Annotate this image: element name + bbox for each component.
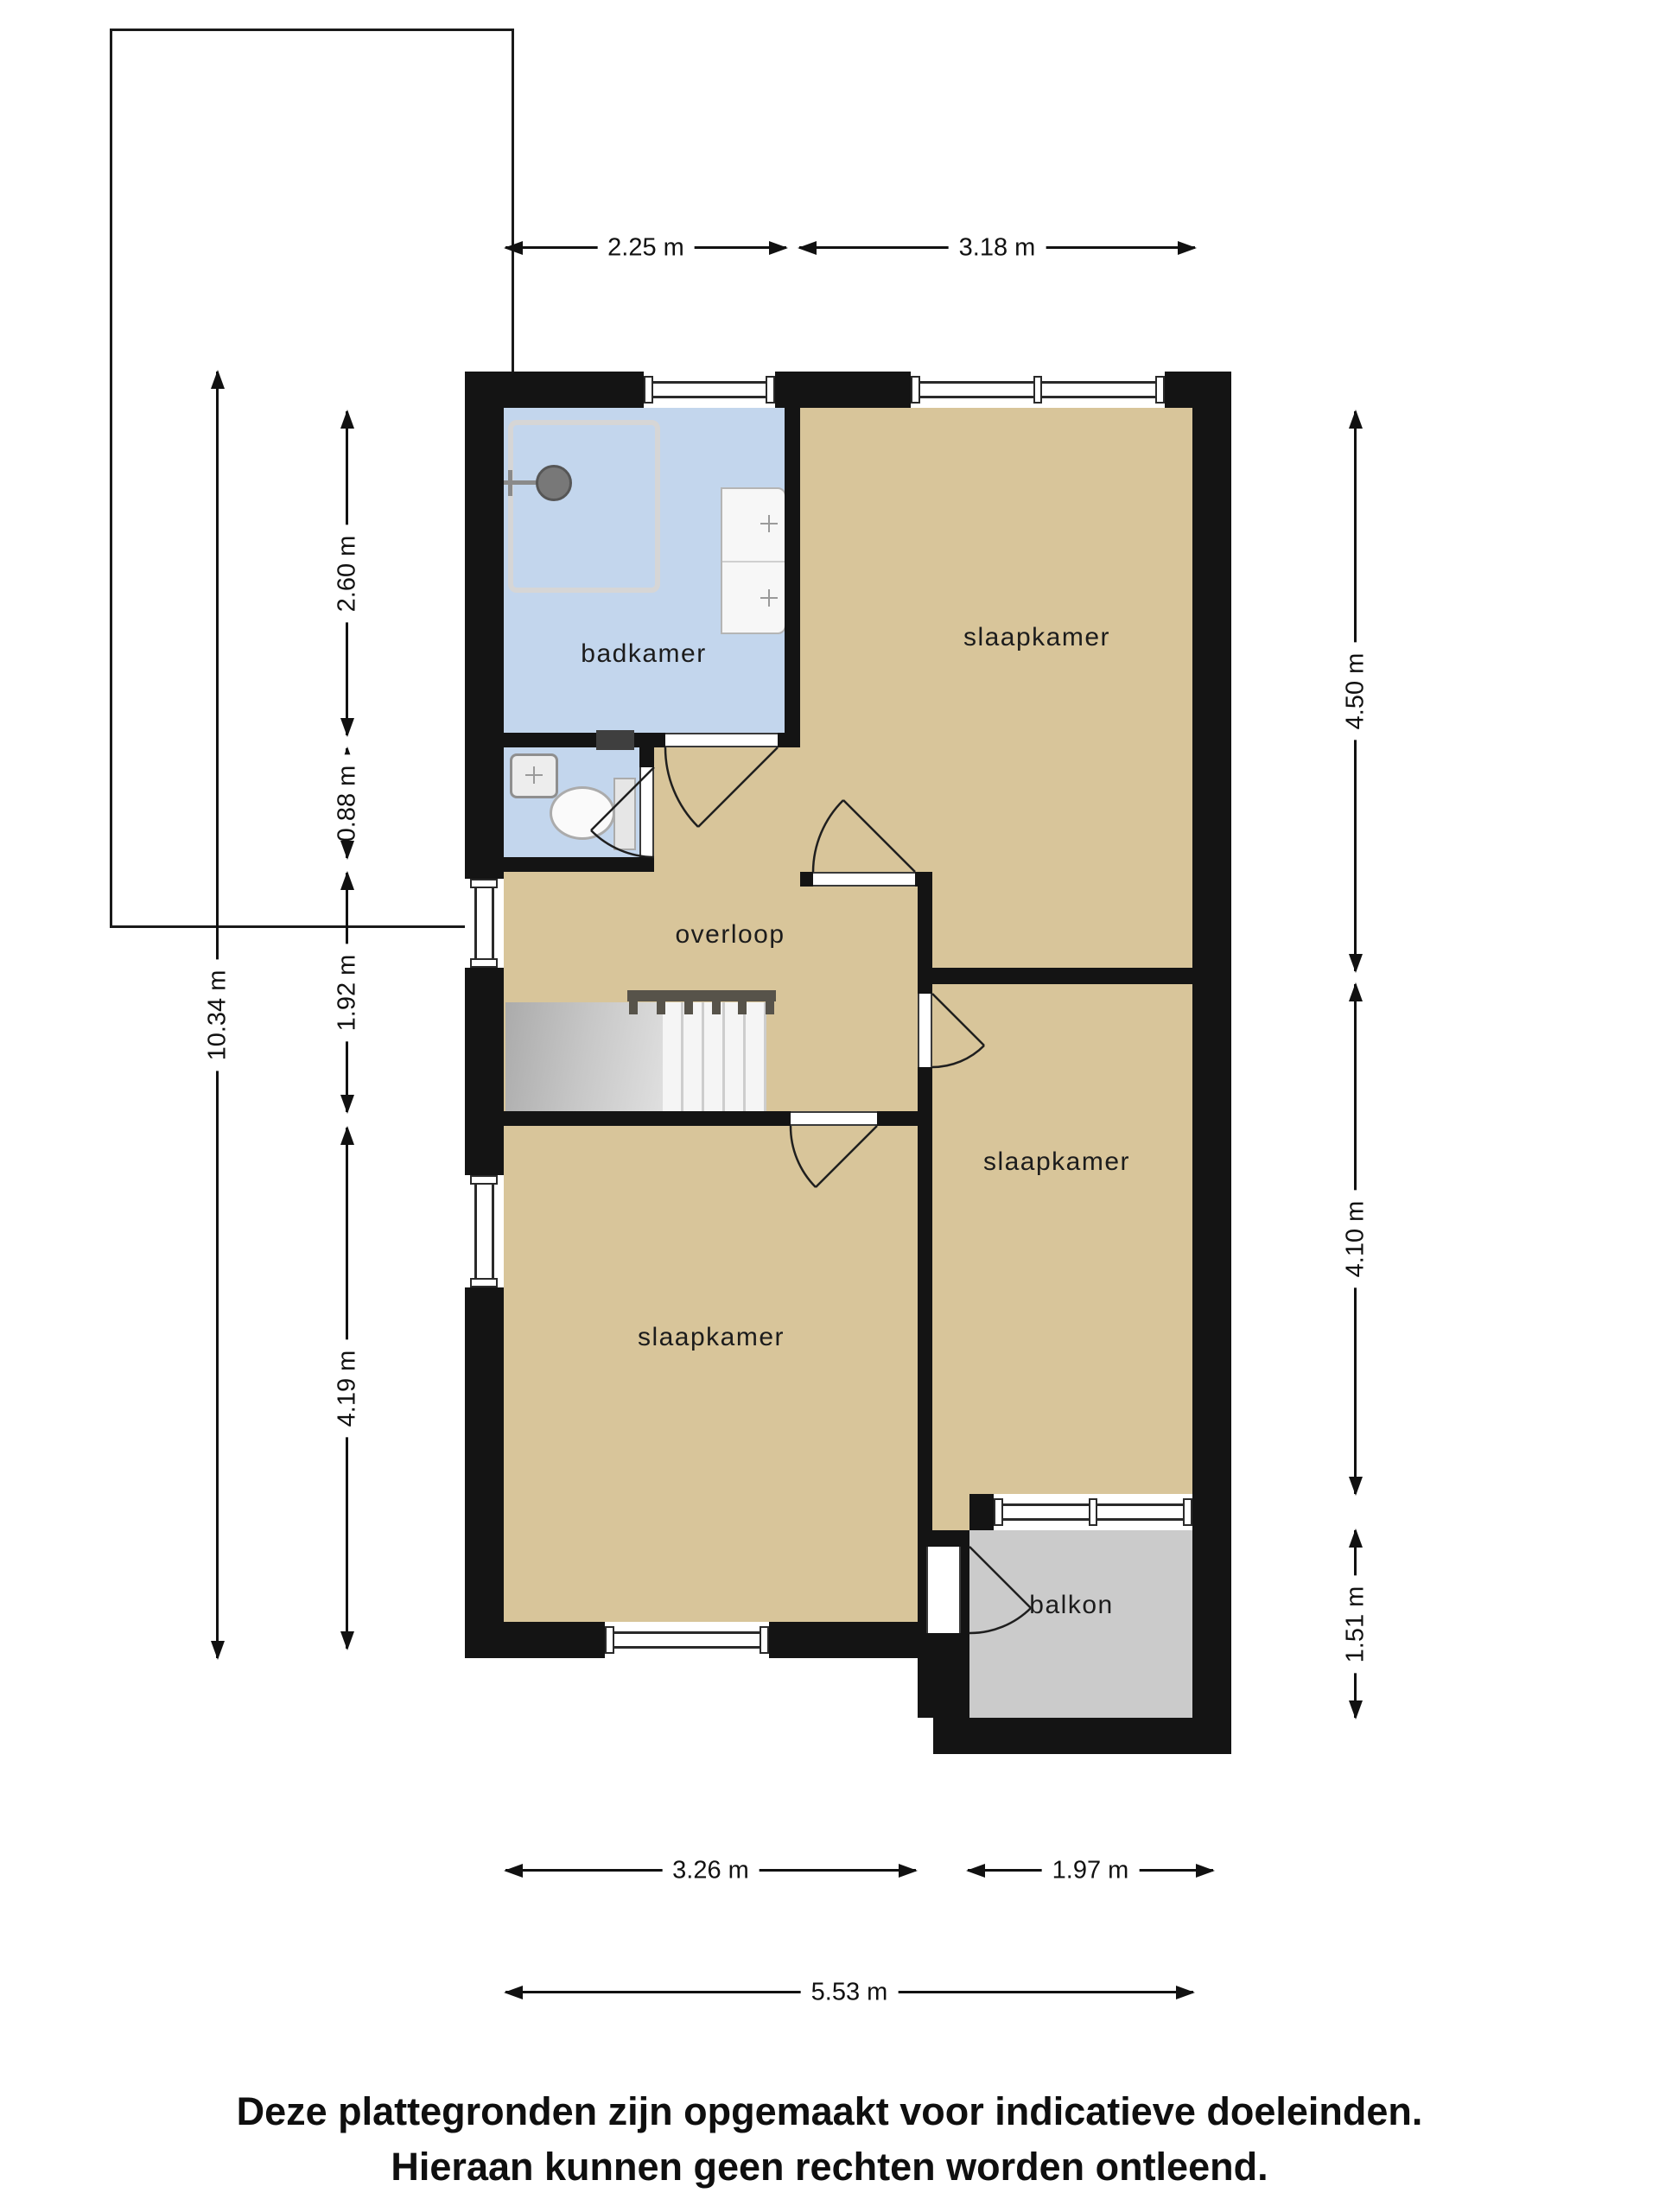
footprint-outline-right bbox=[512, 29, 514, 373]
window-glazing bbox=[610, 1631, 764, 1649]
window-glazing bbox=[649, 381, 770, 398]
stairs-steps bbox=[663, 1002, 766, 1111]
window-badkamer bbox=[644, 372, 775, 408]
shower-handle-icon bbox=[508, 470, 512, 496]
cabinet-divider bbox=[722, 561, 785, 563]
wall-badkamer-right bbox=[785, 408, 800, 747]
window-cap bbox=[470, 1175, 498, 1185]
footprint-outline-left bbox=[110, 29, 112, 928]
door-balkon bbox=[926, 1547, 961, 1633]
window-cap bbox=[644, 376, 653, 404]
room-label-overloop: overloop bbox=[675, 920, 785, 950]
window-cap bbox=[760, 1626, 769, 1654]
door-slaapkamer-top bbox=[813, 872, 915, 887]
railing-post bbox=[684, 1001, 693, 1014]
window-glazing bbox=[474, 884, 494, 963]
door-slaapkamer-mid bbox=[918, 994, 932, 1067]
window-mullion bbox=[1089, 1498, 1097, 1526]
door-slaapkamer-bottom bbox=[791, 1111, 877, 1126]
dimension-top-1: 2.25 m bbox=[505, 246, 786, 249]
railing-post bbox=[766, 1001, 774, 1014]
room-label-balkon: balkon bbox=[1029, 1591, 1113, 1620]
window-cap bbox=[470, 958, 498, 968]
window-cap bbox=[1183, 1498, 1192, 1526]
dimension-top-2: 3.18 m bbox=[799, 246, 1195, 249]
dimension-bottom-2: 1.97 m bbox=[968, 1869, 1213, 1872]
room-label-slaapkamer-mid: slaapkamer bbox=[983, 1147, 1130, 1177]
room-label-slaapkamer-bottom: slaapkamer bbox=[638, 1323, 785, 1352]
wall-balkon-bottom bbox=[933, 1718, 1231, 1754]
dimension-left-3: 1.92 m bbox=[346, 873, 348, 1112]
window-cap bbox=[911, 376, 920, 404]
floor-balkon bbox=[969, 1530, 1192, 1718]
window-cap bbox=[1155, 376, 1165, 404]
wall-center-vertical bbox=[918, 872, 932, 1622]
window-glazing bbox=[474, 1180, 494, 1282]
disclaimer-line-2: Hieraan kunnen geen rechten worden ontle… bbox=[0, 2139, 1659, 2195]
room-label-slaapkamer-top: slaapkamer bbox=[963, 623, 1110, 652]
dimension-bottom-1: 3.26 m bbox=[505, 1869, 916, 1872]
toilet-sink bbox=[510, 753, 558, 798]
dimension-left-total: 10.34 m bbox=[216, 372, 219, 1658]
shower-cabin bbox=[508, 420, 660, 593]
wall-slaapkamer-mid-top bbox=[932, 968, 1192, 984]
dimension-right-2: 4.10 m bbox=[1354, 984, 1357, 1494]
window-cap bbox=[994, 1498, 1003, 1526]
washbasin-cabinet bbox=[721, 487, 786, 634]
railing-post bbox=[629, 1001, 638, 1014]
radiator bbox=[596, 730, 634, 750]
window-left-overloop bbox=[465, 879, 504, 968]
window-cap bbox=[605, 1626, 614, 1654]
disclaimer-line-1: Deze plattegronden zijn opgemaakt voor i… bbox=[0, 2084, 1659, 2139]
window-cap bbox=[470, 1278, 498, 1287]
dimension-left-2: 0.88 m bbox=[346, 748, 348, 858]
window-bottom bbox=[605, 1622, 769, 1658]
stairs-ramp bbox=[505, 1002, 663, 1111]
door-badkamer bbox=[665, 733, 778, 747]
window-slaapkamer-top bbox=[911, 372, 1165, 408]
dimension-right-3: 1.51 m bbox=[1354, 1530, 1357, 1718]
dimension-right-1: 4.50 m bbox=[1354, 411, 1357, 971]
stairs-railing bbox=[627, 990, 776, 1001]
wall-stairs-bottom-right bbox=[877, 1111, 918, 1126]
faucet-icon bbox=[760, 515, 778, 532]
room-label-badkamer: badkamer bbox=[581, 639, 706, 669]
dimension-left-4: 4.19 m bbox=[346, 1128, 348, 1649]
window-cap bbox=[766, 376, 775, 404]
window-mullion bbox=[1033, 376, 1042, 404]
railing-post bbox=[738, 1001, 747, 1014]
wall-right bbox=[1192, 372, 1231, 1754]
faucet-icon bbox=[760, 589, 778, 607]
door-toilet bbox=[639, 767, 654, 857]
toilet-tank bbox=[613, 778, 636, 850]
railing-post bbox=[712, 1001, 721, 1014]
wall-left bbox=[465, 372, 504, 1658]
window-left-slaapkamer bbox=[465, 1175, 504, 1287]
window-cap bbox=[470, 879, 498, 888]
wall-toilet-bottom bbox=[504, 857, 654, 872]
dimension-bottom-total: 5.53 m bbox=[505, 1991, 1193, 1993]
footprint-outline-top bbox=[110, 29, 514, 31]
disclaimer-text: Deze plattegronden zijn opgemaakt voor i… bbox=[0, 2084, 1659, 2195]
window-balkon bbox=[994, 1494, 1192, 1530]
toilet-bowl-icon bbox=[550, 786, 615, 840]
floor-plan: badkamer slaapkamer overloop slaapkamer … bbox=[0, 0, 1659, 2212]
footprint-outline-bottom bbox=[110, 925, 476, 928]
shower-head-icon bbox=[536, 465, 572, 501]
faucet-icon bbox=[525, 766, 543, 784]
railing-post bbox=[657, 1001, 665, 1014]
wall-stairs-bottom-left bbox=[504, 1111, 791, 1126]
dimension-left-1: 2.60 m bbox=[346, 411, 348, 735]
